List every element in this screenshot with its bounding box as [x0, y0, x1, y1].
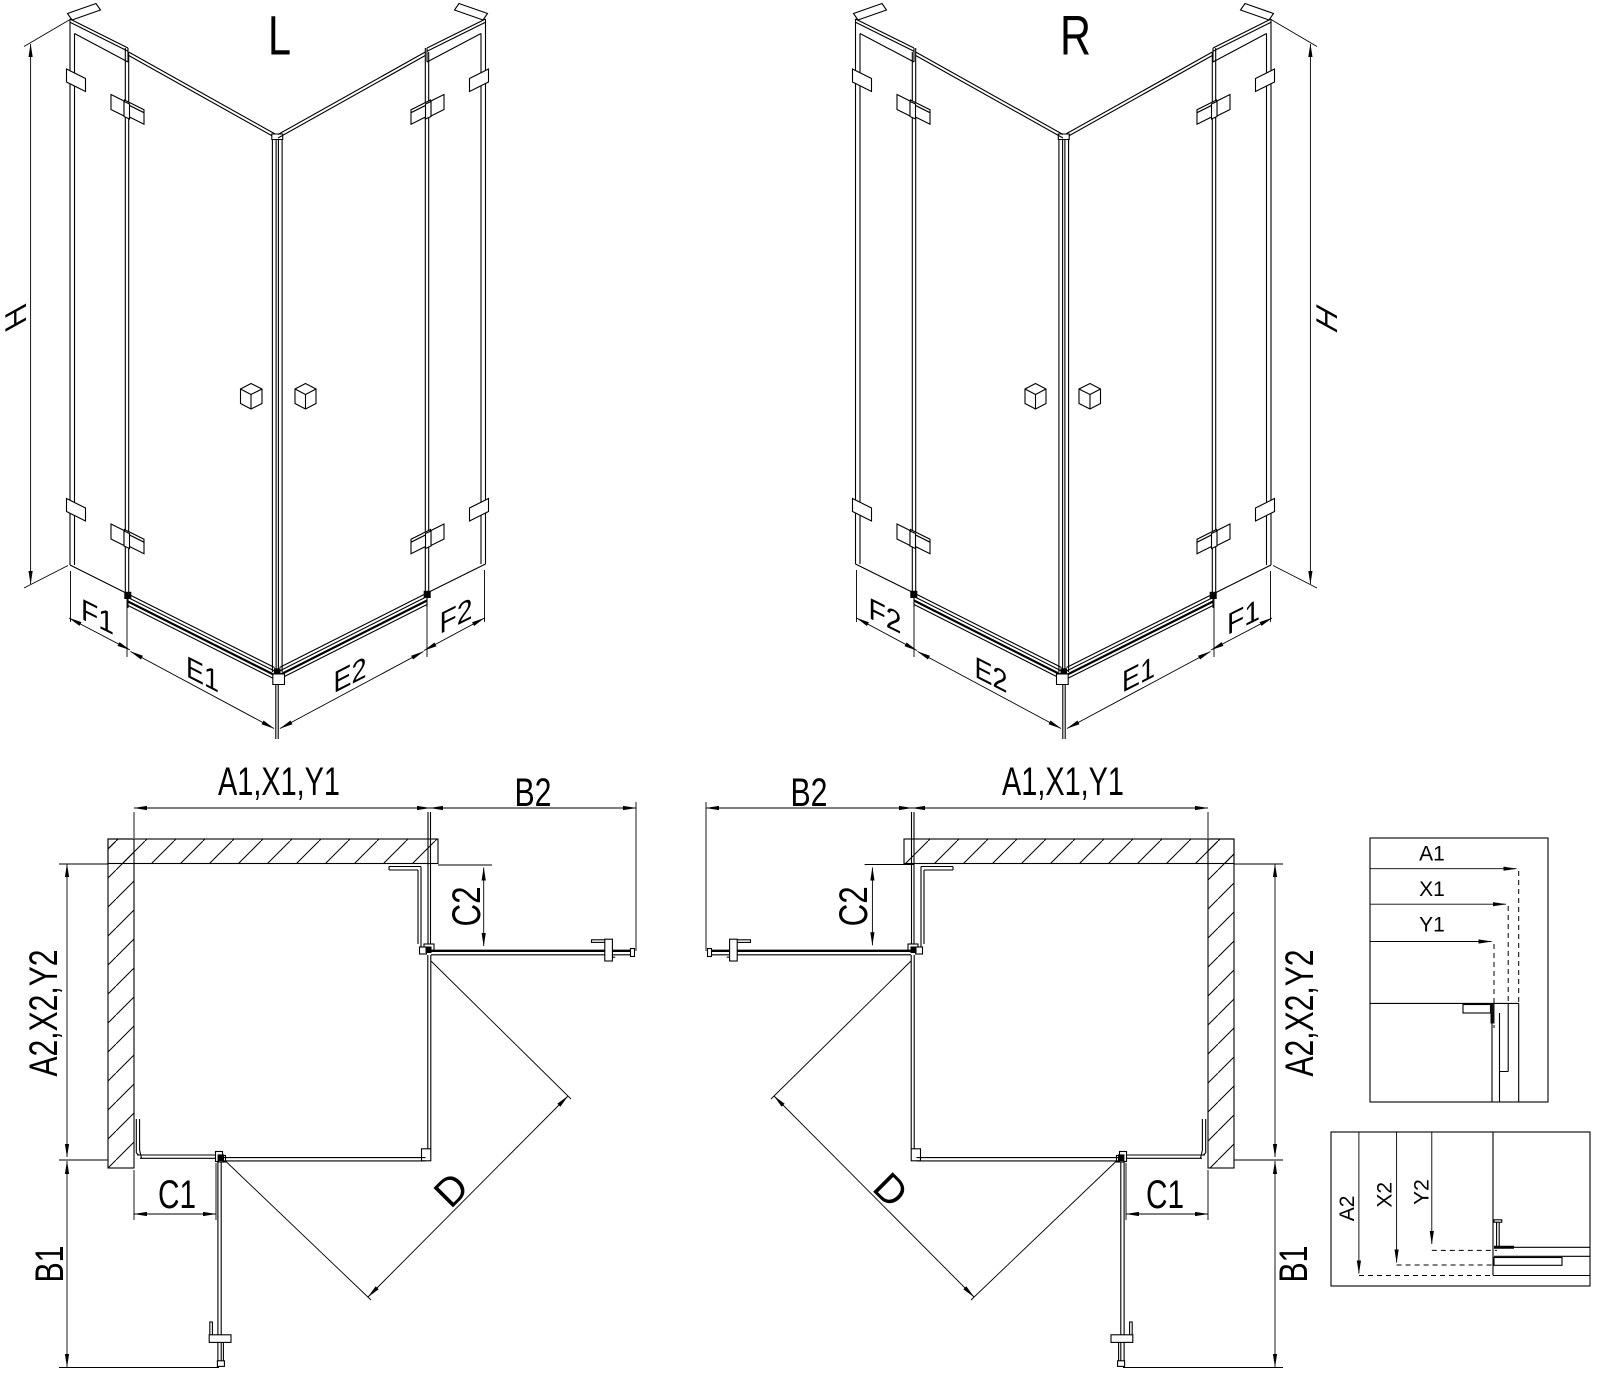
svg-text:Y2: Y2	[1410, 1179, 1433, 1205]
svg-text:A2,X2,Y2: A2,X2,Y2	[22, 950, 66, 1077]
svg-text:C2: C2	[445, 887, 489, 927]
svg-text:B1: B1	[28, 1246, 72, 1283]
svg-text:C2: C2	[832, 886, 876, 926]
svg-text:A1,X1,Y1: A1,X1,Y1	[218, 760, 340, 804]
svg-text:X1: X1	[1419, 878, 1445, 901]
svg-text:A2,X2,Y2: A2,X2,Y2	[1278, 950, 1322, 1077]
svg-text:A1,X1,Y1: A1,X1,Y1	[1002, 760, 1124, 804]
svg-text:B1: B1	[1272, 1246, 1316, 1283]
svg-text:C1: C1	[1146, 1173, 1184, 1217]
svg-text:Y1: Y1	[1419, 914, 1445, 937]
svg-text:A1: A1	[1419, 843, 1445, 866]
svg-text:R: R	[1060, 4, 1091, 67]
svg-text:C1: C1	[158, 1173, 196, 1217]
svg-text:B2: B2	[791, 771, 828, 815]
svg-text:X2: X2	[1373, 1182, 1396, 1208]
svg-text:A2: A2	[1336, 1196, 1359, 1222]
svg-text:B2: B2	[515, 771, 552, 815]
svg-text:L: L	[268, 4, 291, 67]
